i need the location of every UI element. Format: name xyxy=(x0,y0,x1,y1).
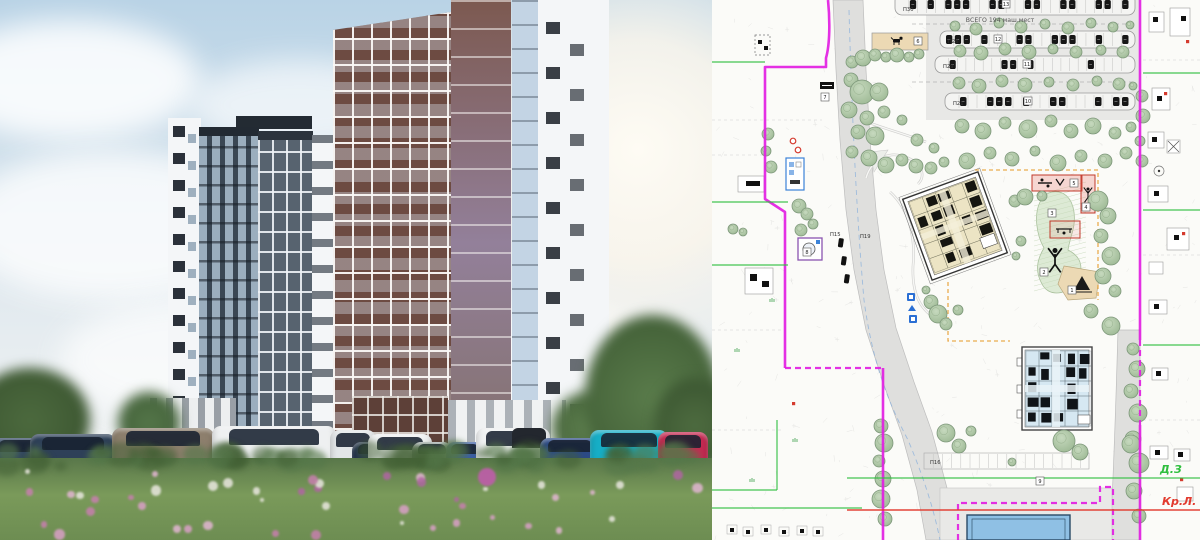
tree-symbol xyxy=(1019,120,1037,138)
flower xyxy=(400,521,404,525)
flower xyxy=(556,527,562,533)
tree-symbol xyxy=(984,147,996,159)
tree-symbol xyxy=(950,21,960,31)
tree-symbol xyxy=(1124,384,1138,398)
tree-symbol xyxy=(872,490,890,508)
flower xyxy=(260,498,265,503)
position-chip-number: 1 xyxy=(1070,288,1073,294)
tree-symbol xyxy=(765,161,777,173)
neighbor-building xyxy=(1152,88,1170,110)
flower xyxy=(490,515,495,520)
tree-symbol xyxy=(925,162,937,174)
tree-symbol xyxy=(1094,229,1108,243)
tree-symbol xyxy=(1096,45,1106,55)
tree-symbol xyxy=(1102,247,1120,265)
tree-symbol xyxy=(966,426,976,436)
tree-symbol xyxy=(1129,404,1147,422)
neighbor-building xyxy=(1170,8,1190,36)
flower xyxy=(91,496,98,503)
flower xyxy=(152,471,158,477)
flower xyxy=(383,472,392,481)
tree-symbol xyxy=(841,102,857,118)
position-chip-number: 8 xyxy=(805,250,808,256)
flower xyxy=(184,525,192,533)
parking-row-label: П26 xyxy=(948,39,959,45)
tree-symbol xyxy=(955,119,969,133)
flower xyxy=(203,521,213,531)
flower xyxy=(616,481,625,490)
tree-symbol xyxy=(1113,78,1125,90)
tree-symbol xyxy=(1117,46,1129,58)
flower xyxy=(25,469,30,474)
tree-symbol xyxy=(1109,285,1121,297)
tree-symbol xyxy=(1129,82,1137,90)
parking-row xyxy=(895,0,1135,15)
tree-symbol xyxy=(940,318,952,330)
tree-symbol xyxy=(1064,124,1078,138)
tree-symbol xyxy=(1072,444,1088,460)
flower xyxy=(138,502,145,509)
red-marker xyxy=(1164,92,1167,95)
tree-symbol xyxy=(975,123,991,139)
position-chip-number: 7 xyxy=(823,95,826,101)
tree-symbol xyxy=(1084,304,1098,318)
tree-symbol xyxy=(922,286,930,294)
zone-label: Д.З xyxy=(1159,463,1182,476)
flower xyxy=(223,478,233,488)
parking-row-label: П30 xyxy=(903,7,914,13)
parking-row-label: П29 xyxy=(943,64,954,70)
flower xyxy=(459,503,466,510)
tree-symbol xyxy=(1037,191,1047,201)
flower xyxy=(151,485,161,495)
tree-symbol xyxy=(937,424,955,442)
tree-symbol xyxy=(1127,343,1139,355)
position-chip-number: 10 xyxy=(1025,99,1031,105)
position-chip-number: 2 xyxy=(1042,270,1045,276)
tree-symbol xyxy=(1085,118,1101,134)
parking-row-label: П19 xyxy=(860,234,871,240)
flower xyxy=(478,468,496,486)
tree-symbol xyxy=(909,159,923,173)
tree-symbol xyxy=(739,228,747,236)
neighbor-building xyxy=(1174,449,1190,461)
tree-symbol xyxy=(1075,150,1087,162)
tree-symbol xyxy=(972,79,986,93)
flower xyxy=(417,477,427,487)
tree-symbol xyxy=(896,154,908,166)
tree-symbol xyxy=(1053,430,1075,452)
tree-symbol xyxy=(1050,155,1066,171)
flower xyxy=(253,487,260,494)
tree-symbol xyxy=(878,106,890,118)
tree-symbol xyxy=(795,224,807,236)
tree-symbol xyxy=(866,127,884,145)
tree-symbol xyxy=(1126,122,1136,132)
tree-symbol xyxy=(1088,191,1108,211)
tree-symbol xyxy=(881,52,891,62)
tree-symbol xyxy=(970,23,982,35)
neighbor-building xyxy=(1149,300,1167,314)
tree-symbol xyxy=(860,111,874,125)
flower xyxy=(454,497,460,503)
flower xyxy=(525,523,532,530)
tree-symbol xyxy=(1086,18,1096,28)
neighbor-building xyxy=(1148,186,1168,202)
tree-symbol xyxy=(801,208,813,220)
tree-symbol xyxy=(808,219,818,229)
tree-symbol xyxy=(1136,155,1148,167)
total-parking-label: ВСЕГО 194 маш.мест xyxy=(966,17,1035,24)
neighbor-building xyxy=(1150,446,1168,459)
tree-symbol xyxy=(1045,115,1057,127)
tree-symbol xyxy=(999,43,1011,55)
flower xyxy=(590,490,595,495)
tree-symbol xyxy=(974,46,988,60)
tree-symbol xyxy=(890,48,904,62)
parking-row-label: П16 xyxy=(930,460,941,466)
flower xyxy=(453,519,460,526)
building-2-footprint xyxy=(1017,347,1092,430)
flower xyxy=(26,488,34,496)
flower xyxy=(86,507,95,516)
red-marker xyxy=(1186,40,1189,43)
tree-symbol xyxy=(1012,252,1020,260)
tree-symbol xyxy=(897,115,907,125)
tree-symbol xyxy=(1122,435,1140,453)
neighbor-building xyxy=(1167,140,1180,153)
tree-symbol xyxy=(1070,46,1082,58)
flower xyxy=(538,481,545,488)
listing-composite: 13121110678912345ВСЕГО 194 маш.местП30П2… xyxy=(0,0,1200,540)
neighbor-building xyxy=(1148,132,1164,148)
parking-row xyxy=(940,31,1135,48)
tree-symbol xyxy=(1048,44,1058,54)
parking-row-label: П21 xyxy=(953,101,964,107)
tree-symbol xyxy=(952,439,966,453)
tree-symbol xyxy=(953,305,963,315)
zone-label: Кр.Л. xyxy=(1162,495,1196,508)
tree-symbol xyxy=(914,49,924,59)
position-chip-number: 13 xyxy=(1003,2,1009,8)
tree-symbol xyxy=(1022,45,1036,59)
neighbor-building xyxy=(1149,262,1163,274)
tree-symbol xyxy=(851,125,865,139)
flower xyxy=(67,491,74,498)
tree-symbol xyxy=(1120,147,1132,159)
tree-symbol xyxy=(1102,317,1120,335)
tree-symbol xyxy=(1092,76,1102,86)
tree-symbol xyxy=(878,512,892,526)
site-plan-drawing: 13121110678912345ВСЕГО 194 маш.местП30П2… xyxy=(712,0,1200,540)
tree-symbol xyxy=(855,50,871,66)
tree-symbol xyxy=(904,52,914,62)
flower xyxy=(173,525,181,533)
neighbor-building xyxy=(1149,12,1164,32)
tree-symbol xyxy=(874,419,888,433)
tree-symbol xyxy=(1098,154,1112,168)
tree-symbol xyxy=(959,153,975,169)
tree-symbol xyxy=(999,117,1011,129)
flower xyxy=(552,494,559,501)
tree-symbol xyxy=(1062,22,1074,34)
flower xyxy=(399,505,408,514)
flower xyxy=(673,470,683,480)
flower xyxy=(41,521,47,527)
position-chip-number: 3 xyxy=(1050,211,1053,217)
tree-symbol xyxy=(861,150,877,166)
tree-symbol xyxy=(878,157,894,173)
parking-row xyxy=(935,56,1135,73)
tree-symbol xyxy=(728,224,738,234)
flower xyxy=(272,530,279,537)
site-plan-panel: 13121110678912345ВСЕГО 194 маш.местП30П2… xyxy=(712,0,1200,540)
flower xyxy=(692,483,702,493)
position-chip-number: 11 xyxy=(1024,62,1030,68)
photo-render-panel xyxy=(0,0,712,540)
position-chip-number: 5 xyxy=(1072,181,1075,187)
position-chip-number: 12 xyxy=(995,37,1001,43)
red-marker xyxy=(1182,232,1185,235)
tree-symbol xyxy=(1136,109,1150,123)
red-marker xyxy=(792,402,795,405)
flower xyxy=(430,525,436,531)
position-chip-number: 4 xyxy=(1084,205,1087,211)
tree-symbol xyxy=(1108,22,1118,32)
position-chip-number: 6 xyxy=(916,39,919,45)
neighbor-building xyxy=(1152,368,1168,380)
flower xyxy=(609,516,615,522)
tree-symbol xyxy=(1016,236,1026,246)
flower xyxy=(54,529,65,540)
flower xyxy=(128,495,133,500)
tree-symbol xyxy=(1126,21,1134,29)
tree-symbol xyxy=(1129,361,1145,377)
tree-symbol xyxy=(1067,79,1079,91)
tree-symbol xyxy=(996,75,1008,87)
tree-symbol xyxy=(1008,458,1016,466)
flower xyxy=(311,530,321,540)
tree-symbol xyxy=(1018,78,1032,92)
tree-symbol xyxy=(929,143,939,153)
tree-symbol xyxy=(1095,268,1111,284)
flower xyxy=(298,488,304,494)
position-chip-number: 9 xyxy=(1038,479,1041,485)
parking-row-label: П15 xyxy=(830,232,841,238)
clover-flowers xyxy=(0,0,712,540)
tree-symbol xyxy=(939,157,949,167)
tree-symbol xyxy=(1005,152,1019,166)
utility-marker xyxy=(790,138,796,144)
tree-symbol xyxy=(1030,146,1040,156)
tree-symbol xyxy=(953,77,965,89)
tree-symbol xyxy=(846,146,858,158)
tree-symbol xyxy=(870,83,888,101)
parking-row xyxy=(945,93,1135,110)
flower xyxy=(208,481,218,491)
tree-symbol xyxy=(1109,127,1121,139)
flower xyxy=(322,502,330,510)
tree-symbol xyxy=(1040,19,1050,29)
flower xyxy=(76,492,83,499)
tree-symbol xyxy=(911,134,923,146)
neighbor-building xyxy=(1167,228,1189,250)
tree-symbol xyxy=(954,45,966,57)
flower xyxy=(483,487,487,491)
tree-symbol xyxy=(1017,189,1033,205)
tree-symbol xyxy=(1136,90,1148,102)
utility-marker xyxy=(795,147,801,153)
tree-symbol xyxy=(869,49,881,61)
tree-symbol xyxy=(1044,77,1054,87)
tree-symbol xyxy=(1100,208,1116,224)
